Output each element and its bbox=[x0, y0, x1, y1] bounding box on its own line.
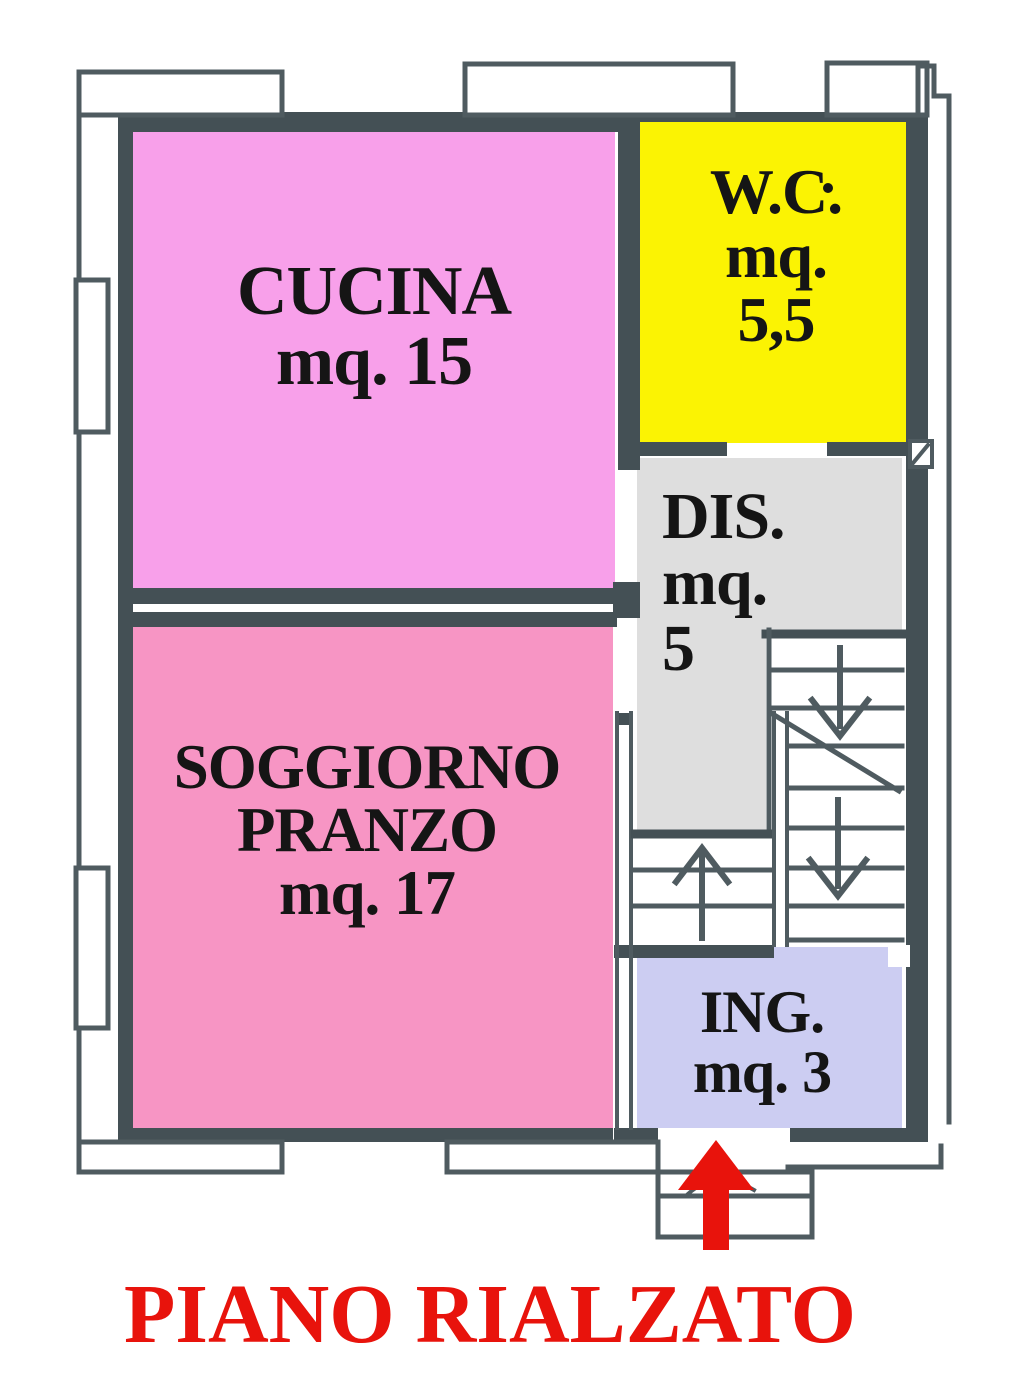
floor-plan: CUCINA mq. 15 W.C. mq. 5,5 DIS. mq. 5 SO… bbox=[0, 0, 1024, 1395]
room-area: mq. 3 bbox=[637, 1033, 887, 1093]
room-area-value: 5,5 bbox=[640, 276, 912, 340]
room-name: DIS. bbox=[662, 470, 882, 536]
room-label-wc: W.C. mq. 5,5 bbox=[640, 148, 912, 340]
room-name: W.C. bbox=[640, 148, 912, 212]
shaft-symbol-icon bbox=[910, 441, 932, 467]
room-name: SOGGIORNO bbox=[133, 728, 601, 791]
stair-up-arrow-icon bbox=[676, 848, 728, 938]
window-left-lower bbox=[76, 868, 108, 1028]
room-label-ing: ING. mq. 3 bbox=[637, 973, 887, 1093]
room-area: mq. 15 bbox=[133, 316, 615, 386]
room-area: mq. 17 bbox=[133, 854, 601, 917]
stair-down-arrow-lower-icon bbox=[810, 800, 866, 896]
window-bump-bottom-middle bbox=[447, 1142, 658, 1172]
window-bump-bottom-left bbox=[79, 1142, 282, 1172]
window-bump-top-right bbox=[827, 63, 927, 115]
entrance bbox=[658, 1140, 812, 1250]
room-area: mq. bbox=[640, 212, 912, 276]
window-left-upper bbox=[76, 280, 108, 432]
window-bump-top-left bbox=[79, 72, 282, 115]
window-bump-top-middle bbox=[465, 64, 733, 115]
exterior-right-line bbox=[918, 66, 949, 1122]
room-label-soggiorno: SOGGIORNO PRANZO mq. 17 bbox=[133, 728, 601, 917]
plan-title: PIANO RIALZATO bbox=[0, 1272, 980, 1356]
room-name: CUCINA bbox=[133, 246, 615, 316]
room-label-cucina: CUCINA mq. 15 bbox=[133, 246, 615, 386]
room-name: ING. bbox=[637, 973, 887, 1033]
soggiorno-dis-partition bbox=[617, 713, 631, 1128]
exterior-bottom-right-corner bbox=[788, 1146, 941, 1167]
room-label-dis: DIS. mq. 5 bbox=[662, 470, 882, 668]
